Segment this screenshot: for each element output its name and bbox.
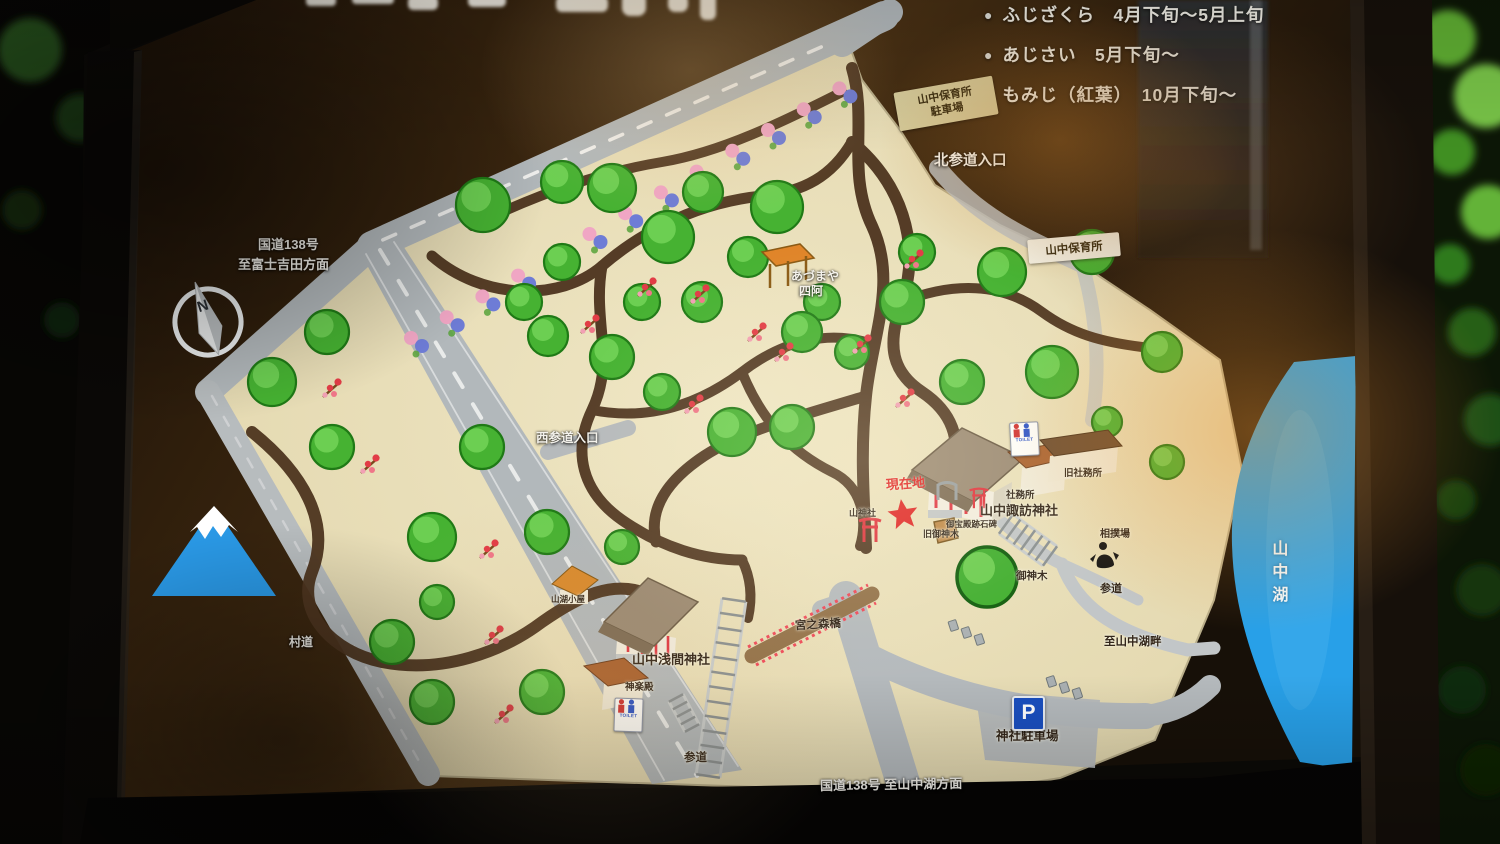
tree-icon-highlight [608, 533, 627, 552]
blossom [699, 297, 705, 303]
tree-icon-highlight [510, 287, 530, 307]
blossom [331, 391, 337, 397]
blossom [637, 291, 642, 296]
blossom [322, 392, 327, 397]
tree-icon-highlight [594, 338, 618, 362]
blossom [695, 291, 701, 297]
hydrangea-leaf [770, 143, 777, 150]
tree-icon-highlight [414, 683, 438, 707]
blossom [585, 321, 591, 327]
blossom [506, 704, 513, 711]
blossom [689, 401, 695, 407]
blossom [684, 408, 689, 413]
tree-icon-highlight [713, 412, 739, 438]
tree-icon-highlight [532, 319, 554, 341]
blossom [696, 394, 703, 401]
blossom [895, 402, 900, 407]
blossom [642, 284, 648, 290]
blossom [852, 348, 857, 353]
blossom [372, 454, 379, 461]
tree-icon-highlight [983, 252, 1009, 278]
blossom [488, 552, 494, 558]
blossom [479, 553, 484, 558]
tree-icon-highlight [647, 215, 676, 244]
tree-icon-highlight [1074, 233, 1098, 257]
tree-icon-highlight [944, 363, 968, 387]
hydrangea-leaf [734, 163, 741, 170]
blossom [503, 717, 509, 723]
tree-icon-highlight [884, 283, 908, 307]
blossom [693, 407, 699, 413]
tree-icon-highlight [374, 623, 398, 647]
tree-icon-highlight [756, 185, 785, 214]
blossom [484, 546, 490, 552]
blossom [907, 388, 914, 395]
hydrangea-leaf [448, 330, 455, 337]
blossom [759, 322, 766, 329]
tree-icon-highlight [253, 362, 279, 388]
blossom [774, 356, 779, 361]
tree-icon-highlight [461, 182, 491, 212]
tree-icon-highlight [529, 513, 553, 537]
blossom [646, 290, 652, 296]
blossom [499, 711, 505, 717]
blossom [916, 249, 923, 256]
blossom [909, 256, 915, 262]
blossom [334, 378, 341, 385]
tree-icon-highlight [1153, 448, 1172, 467]
tree-icon-highlight [808, 287, 828, 307]
hydrangea-leaf [484, 309, 491, 316]
blossom [702, 284, 709, 291]
blossom [779, 349, 785, 355]
blossom [592, 314, 599, 321]
tree-icon-highlight [548, 247, 568, 267]
blossom [327, 385, 333, 391]
tree-icon-highlight [413, 517, 439, 543]
hydrangea-leaf [627, 226, 634, 233]
tree-icon-highlight [545, 164, 568, 187]
blossom [493, 638, 499, 644]
map-artwork: N [0, 0, 1500, 844]
blossom [857, 341, 863, 347]
tree-icon-highlight [1146, 335, 1168, 357]
tree-icon-highlight [423, 588, 442, 607]
blossom [864, 334, 871, 341]
blossom [783, 355, 789, 361]
tree-icon-highlight [774, 408, 798, 432]
goshinboku-tree-icon-highlight [963, 552, 995, 584]
tree-icon-highlight [309, 313, 333, 337]
blossom [752, 329, 758, 335]
tree-icon-highlight [732, 240, 754, 262]
blossom [904, 401, 910, 407]
blossom [589, 327, 595, 333]
photo-of-park-map-signboard: N ● ふじざくら 4月下旬～5月上旬 ● あじさい 5月下旬～ ● もみじ（紅… [0, 0, 1500, 844]
blossom [690, 298, 695, 303]
hydrangea-leaf [413, 351, 420, 358]
blossom [900, 395, 906, 401]
blossom [369, 467, 375, 473]
blossom [904, 263, 909, 268]
hydrangea-leaf [805, 122, 812, 129]
tree-icon-highlight [1095, 409, 1112, 426]
tree-icon-highlight [524, 673, 548, 697]
tree-icon-highlight [593, 168, 619, 194]
blossom [756, 335, 762, 341]
blossom [861, 347, 867, 353]
tree-icon-highlight [786, 315, 808, 337]
tree-icon-highlight [648, 377, 668, 397]
blossom [747, 336, 752, 341]
hydrangea-leaf [591, 247, 598, 254]
tree-icon-highlight [687, 175, 709, 197]
hydrangea-leaf [841, 101, 848, 108]
blossom [649, 277, 656, 284]
blossom [580, 328, 585, 333]
tree-icon-highlight [464, 428, 488, 452]
blossom [913, 262, 919, 268]
blossom [786, 342, 793, 349]
tree-icon-highlight [314, 428, 338, 452]
blossom [489, 632, 495, 638]
tree-icon-highlight [1031, 350, 1060, 379]
blossom [484, 639, 489, 644]
blossom [491, 539, 498, 546]
blossom [365, 461, 371, 467]
blossom [494, 718, 499, 723]
blossom [496, 625, 503, 632]
blossom [360, 468, 365, 473]
